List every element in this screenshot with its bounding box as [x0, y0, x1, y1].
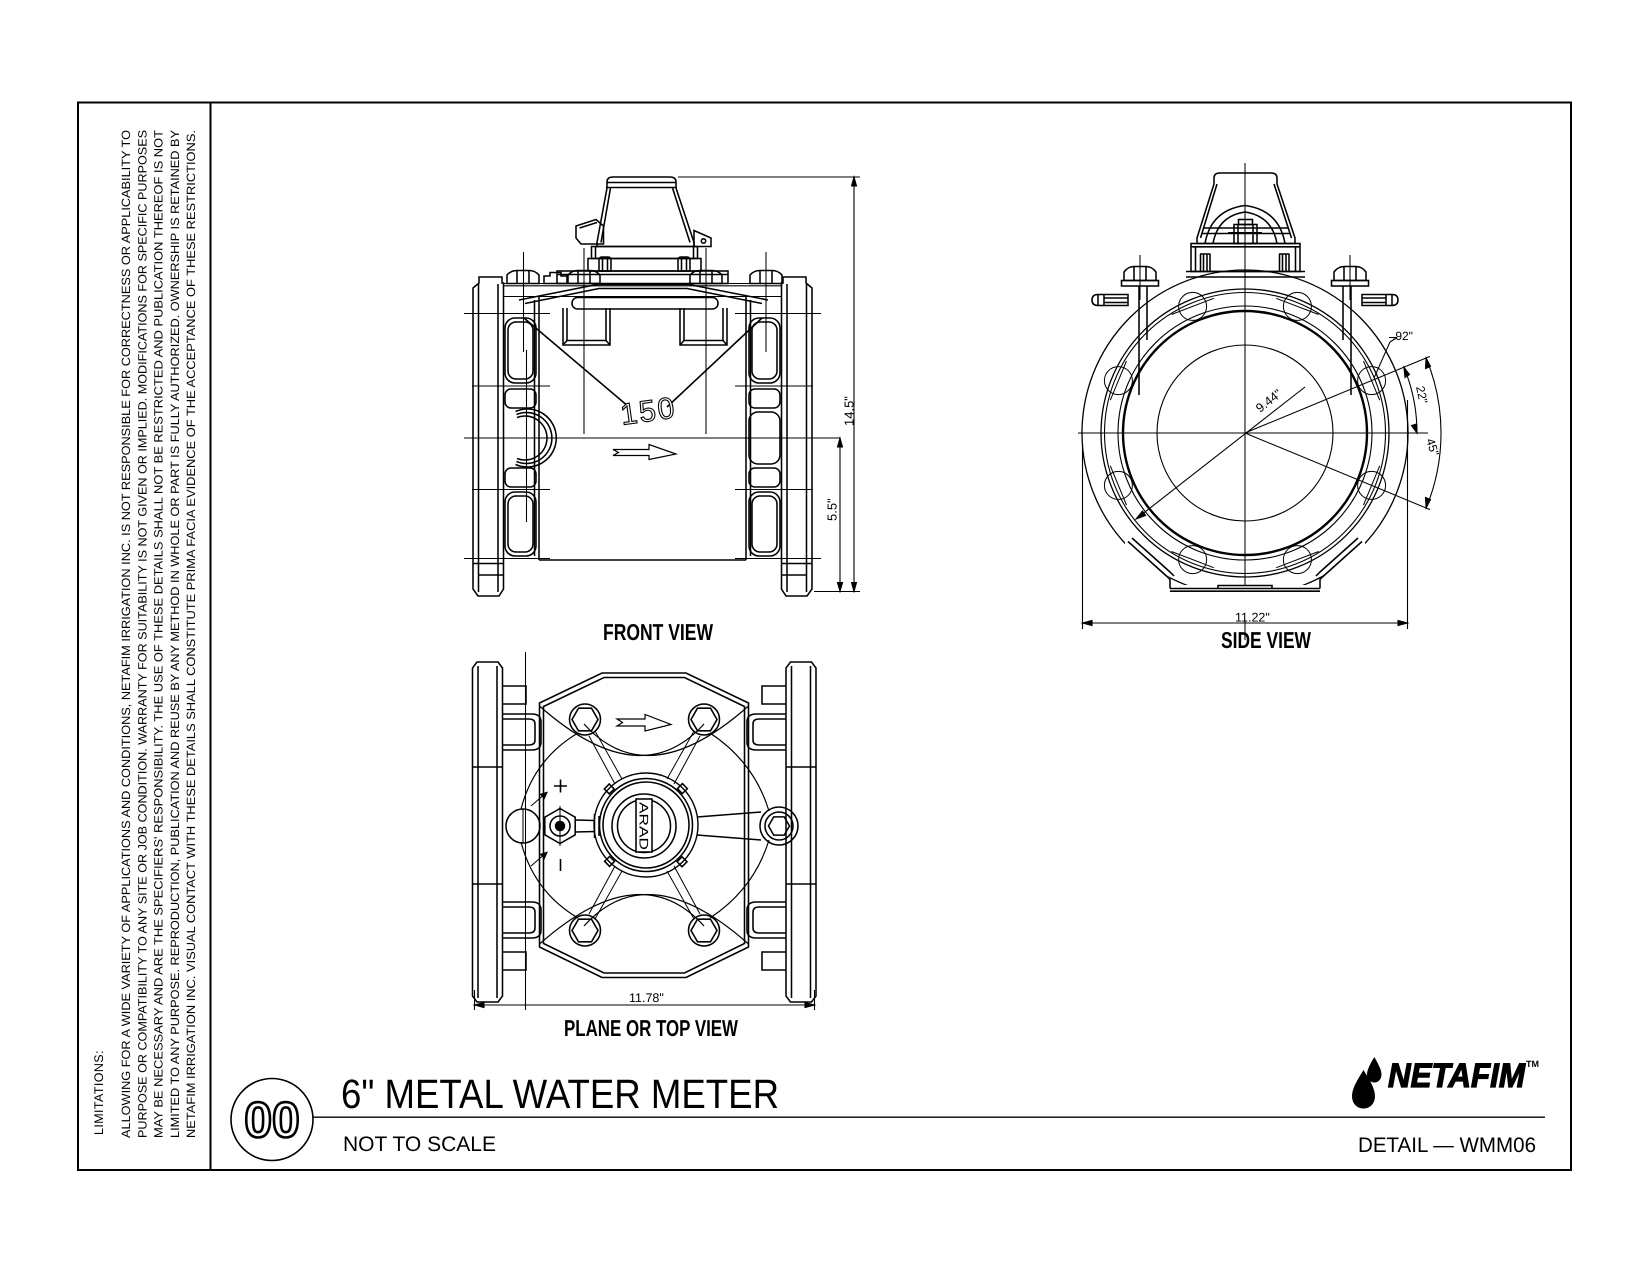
svg-text:PURPOSE OR COMPATIBILITY TO AN: PURPOSE OR COMPATIBILITY TO ANY SITE OR …	[135, 130, 149, 1138]
svg-text:FRONT VIEW: FRONT VIEW	[603, 619, 713, 645]
svg-text:PLANE OR TOP VIEW: PLANE OR TOP VIEW	[564, 1015, 738, 1041]
svg-text:00: 00	[244, 1092, 300, 1148]
svg-text:LIMITED TO ANY PURPOSE. REPRO: LIMITED TO ANY PURPOSE. REPRODUCTION, PU…	[168, 130, 182, 1138]
svg-text:TM: TM	[1526, 1059, 1539, 1069]
svg-text:.92": .92"	[1392, 329, 1413, 343]
svg-text:5.5": 5.5"	[825, 498, 840, 521]
svg-text:DETAIL — WMM06: DETAIL — WMM06	[1358, 1134, 1536, 1157]
svg-text:NOT TO SCALE: NOT TO SCALE	[343, 1133, 496, 1156]
svg-text:14.5": 14.5"	[842, 396, 857, 426]
svg-text:ARAD: ARAD	[637, 802, 651, 850]
svg-text:11.78": 11.78"	[629, 991, 664, 1005]
svg-text:NETAFIM IRRIGATION INC. VISUA: NETAFIM IRRIGATION INC. VISUAL CONTACT W…	[184, 130, 198, 1138]
svg-text:11.22": 11.22"	[1235, 611, 1270, 625]
svg-text:ALLOWING FOR A WIDE VARIETY OF: ALLOWING FOR A WIDE VARIETY OF APPLICATI…	[119, 130, 133, 1138]
svg-text:6" METAL WATER METER: 6" METAL WATER METER	[341, 1071, 779, 1117]
svg-text:SIDE VIEW: SIDE VIEW	[1221, 627, 1311, 653]
svg-text:MAY BE NECESSARY AND ARE THE S: MAY BE NECESSARY AND ARE THE SPECIFIERS'…	[152, 129, 166, 1138]
svg-text:LIMITATIONS:: LIMITATIONS:	[92, 1050, 106, 1135]
svg-text:NETAFIM: NETAFIM	[1388, 1057, 1526, 1095]
